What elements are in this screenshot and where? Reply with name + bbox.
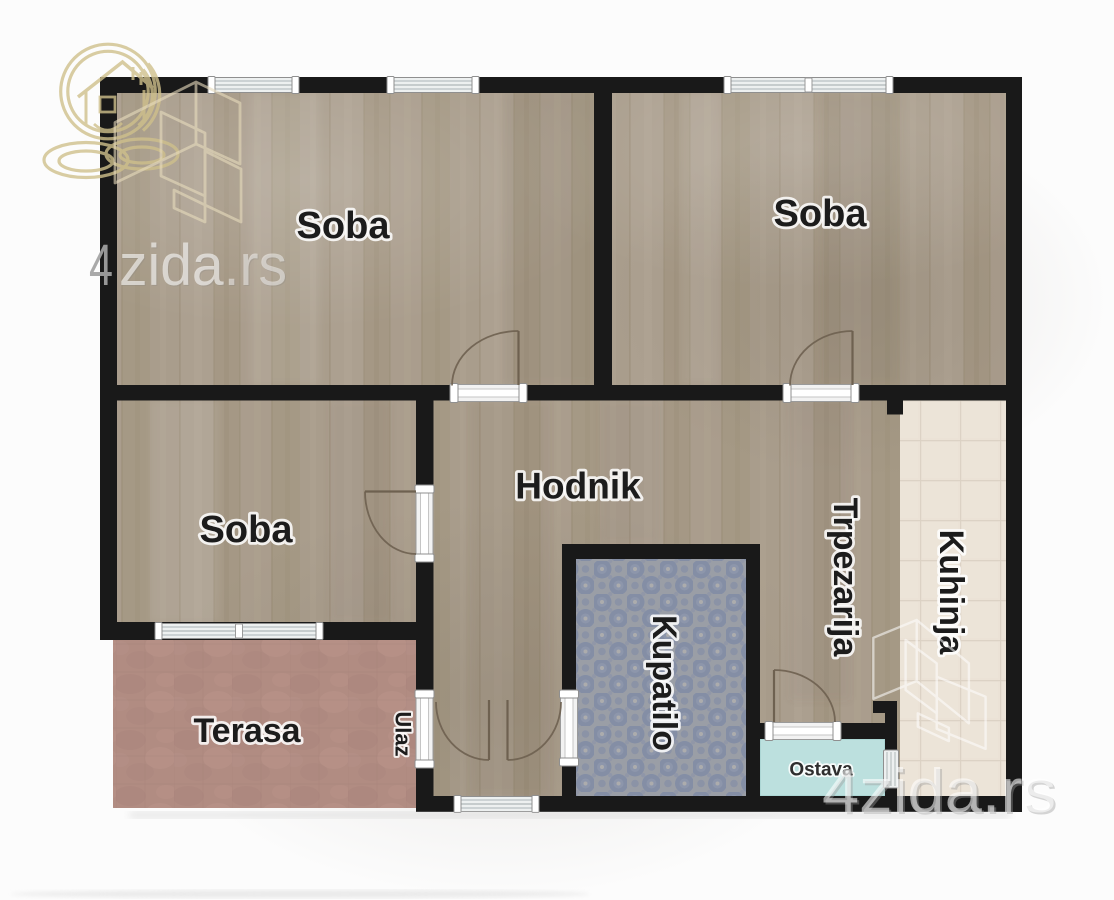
svg-text:Soba: Soba [297, 205, 391, 247]
svg-text:4: 4 [89, 233, 113, 298]
svg-text:Terasa: Terasa [193, 712, 301, 750]
svg-text:zida.rs: zida.rs [119, 233, 287, 298]
svg-text:Ulaz: Ulaz [391, 711, 416, 756]
svg-text:Hodnik: Hodnik [515, 466, 641, 507]
svg-text:Trpezarija: Trpezarija [826, 498, 864, 658]
svg-text:Soba: Soba [200, 509, 294, 551]
svg-text:Kupatilo: Kupatilo [645, 615, 683, 751]
svg-text:Soba: Soba [774, 193, 868, 235]
